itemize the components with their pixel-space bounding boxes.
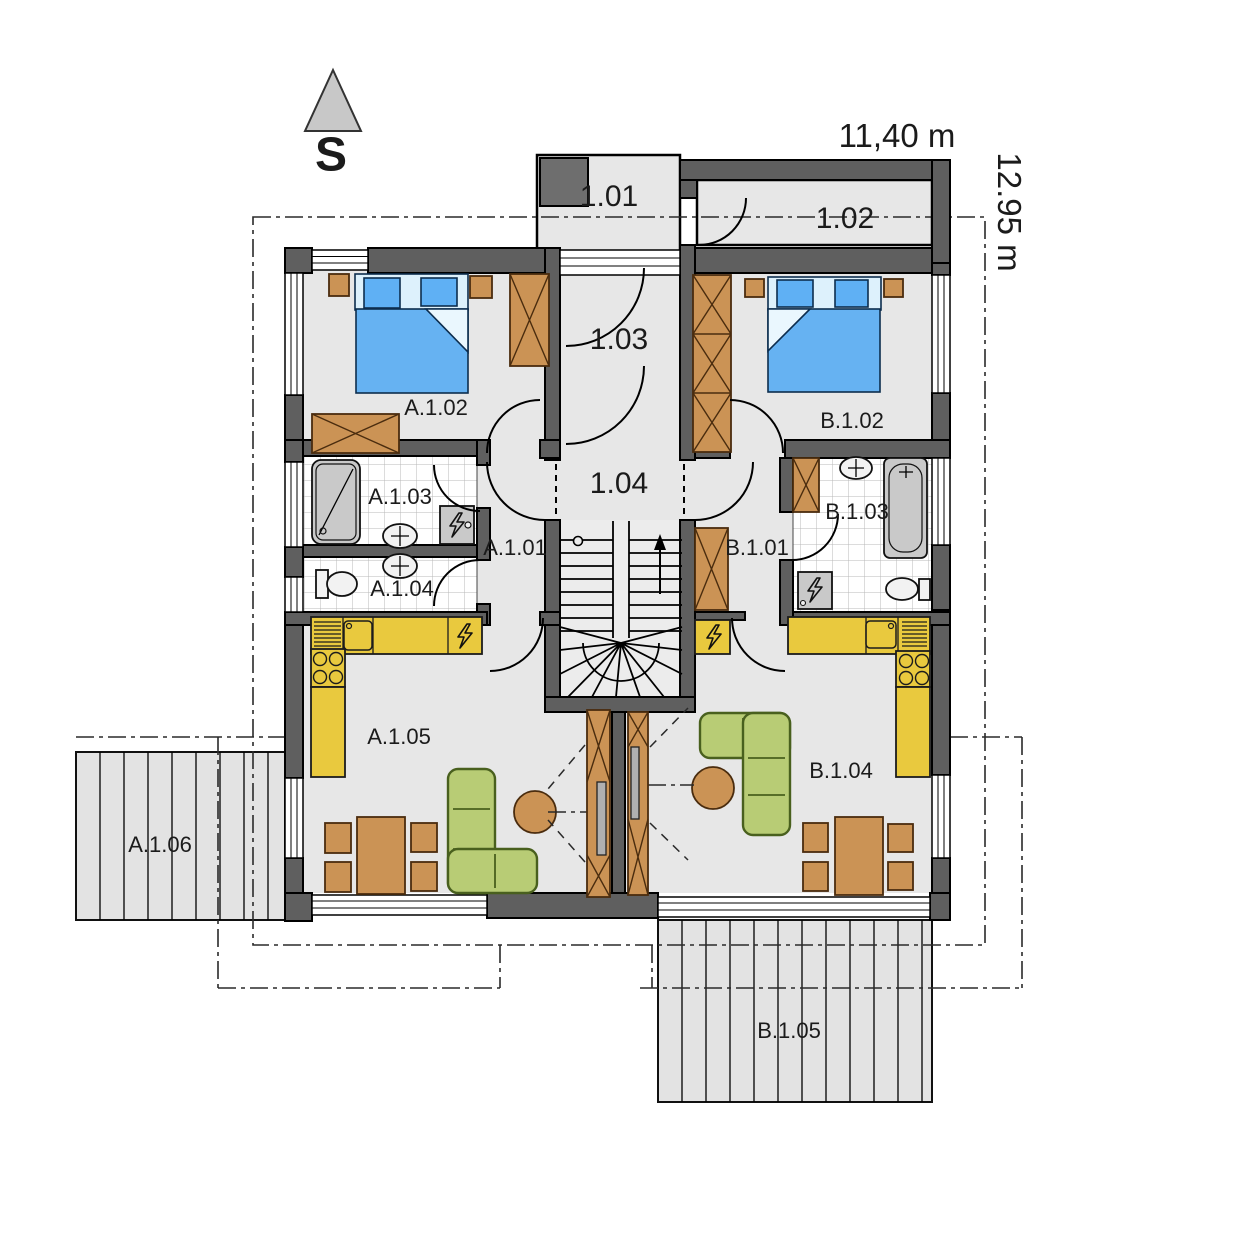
entry-door-band	[560, 250, 680, 275]
sink	[840, 457, 872, 479]
nightstand	[884, 279, 903, 297]
dining-table	[357, 817, 405, 894]
tv-screen	[631, 747, 639, 819]
window-right-b102	[932, 275, 950, 393]
room-label-a104: A.1.04	[370, 576, 434, 602]
washing-machine	[440, 506, 474, 544]
chair	[888, 862, 913, 890]
dimension-height: 12.95 m	[990, 152, 1028, 271]
nightstand	[470, 276, 492, 298]
tv-cabinet-b	[628, 712, 648, 895]
floor-plan-page: S 11,40 m 12.95 m 1.01 1.02 1.03 1.04 A.…	[0, 0, 1240, 1240]
room-label-b103: B.1.03	[825, 499, 889, 525]
room-label-b101: B.1.01	[725, 535, 789, 561]
washing-machine	[798, 572, 832, 609]
window-right-b103	[932, 458, 950, 545]
nightstand	[329, 274, 349, 296]
room-label-101: 1.01	[580, 180, 638, 214]
dimension-width: 11,40 m	[839, 117, 956, 155]
window-left-a102	[285, 273, 303, 395]
room-label-b104: B.1.04	[809, 758, 873, 784]
balcony-floor	[697, 180, 932, 245]
double-bed-b	[768, 277, 881, 392]
tv-screen	[597, 782, 606, 855]
glass-door-a105	[312, 895, 487, 915]
wardrobe-a102	[510, 274, 549, 366]
nightstand	[745, 279, 764, 297]
room-label-a105: A.1.05	[367, 724, 431, 750]
room-label-a103: A.1.03	[368, 484, 432, 510]
tv-cabinet-a	[587, 710, 610, 897]
sink	[383, 524, 417, 548]
window-left-a104	[285, 577, 303, 612]
shower	[312, 460, 360, 544]
window-left-a105	[285, 778, 303, 858]
coffee-table-b	[692, 767, 734, 809]
bath-cabinet	[793, 458, 819, 512]
toilet	[316, 570, 357, 598]
sink	[383, 554, 417, 578]
chair	[411, 862, 437, 891]
room-label-102: 1.02	[816, 202, 874, 236]
dining-table	[835, 817, 883, 895]
chair	[325, 862, 351, 892]
room-label-a101: A.1.01	[483, 535, 547, 561]
room-label-a106: A.1.06	[128, 832, 192, 858]
wardrobe-b102	[693, 275, 731, 452]
chair	[411, 823, 437, 852]
double-bed-a	[355, 274, 468, 393]
room-label-b105: B.1.05	[757, 1018, 821, 1044]
chair	[325, 823, 351, 853]
stair-stringer	[613, 521, 629, 638]
window-top	[312, 250, 368, 270]
chair	[888, 824, 913, 852]
bathtub	[884, 458, 927, 558]
chest-a102	[312, 414, 399, 453]
terrace-b105	[658, 920, 932, 1102]
room-label-a102: A.1.02	[404, 395, 468, 421]
window-right-b104	[932, 775, 950, 858]
wardrobe-b101	[695, 528, 728, 610]
chair	[803, 823, 828, 852]
room-label-104: 1.04	[590, 467, 648, 501]
toilet	[886, 578, 930, 600]
compass-label: S	[315, 128, 347, 183]
fridge-b	[695, 620, 730, 654]
room-label-103: 1.03	[590, 323, 648, 357]
room-label-b102: B.1.02	[820, 408, 884, 434]
window-left-a103	[285, 462, 303, 547]
north-arrow-icon	[305, 70, 361, 131]
glass-door-b104	[658, 897, 930, 917]
chair	[803, 862, 828, 891]
